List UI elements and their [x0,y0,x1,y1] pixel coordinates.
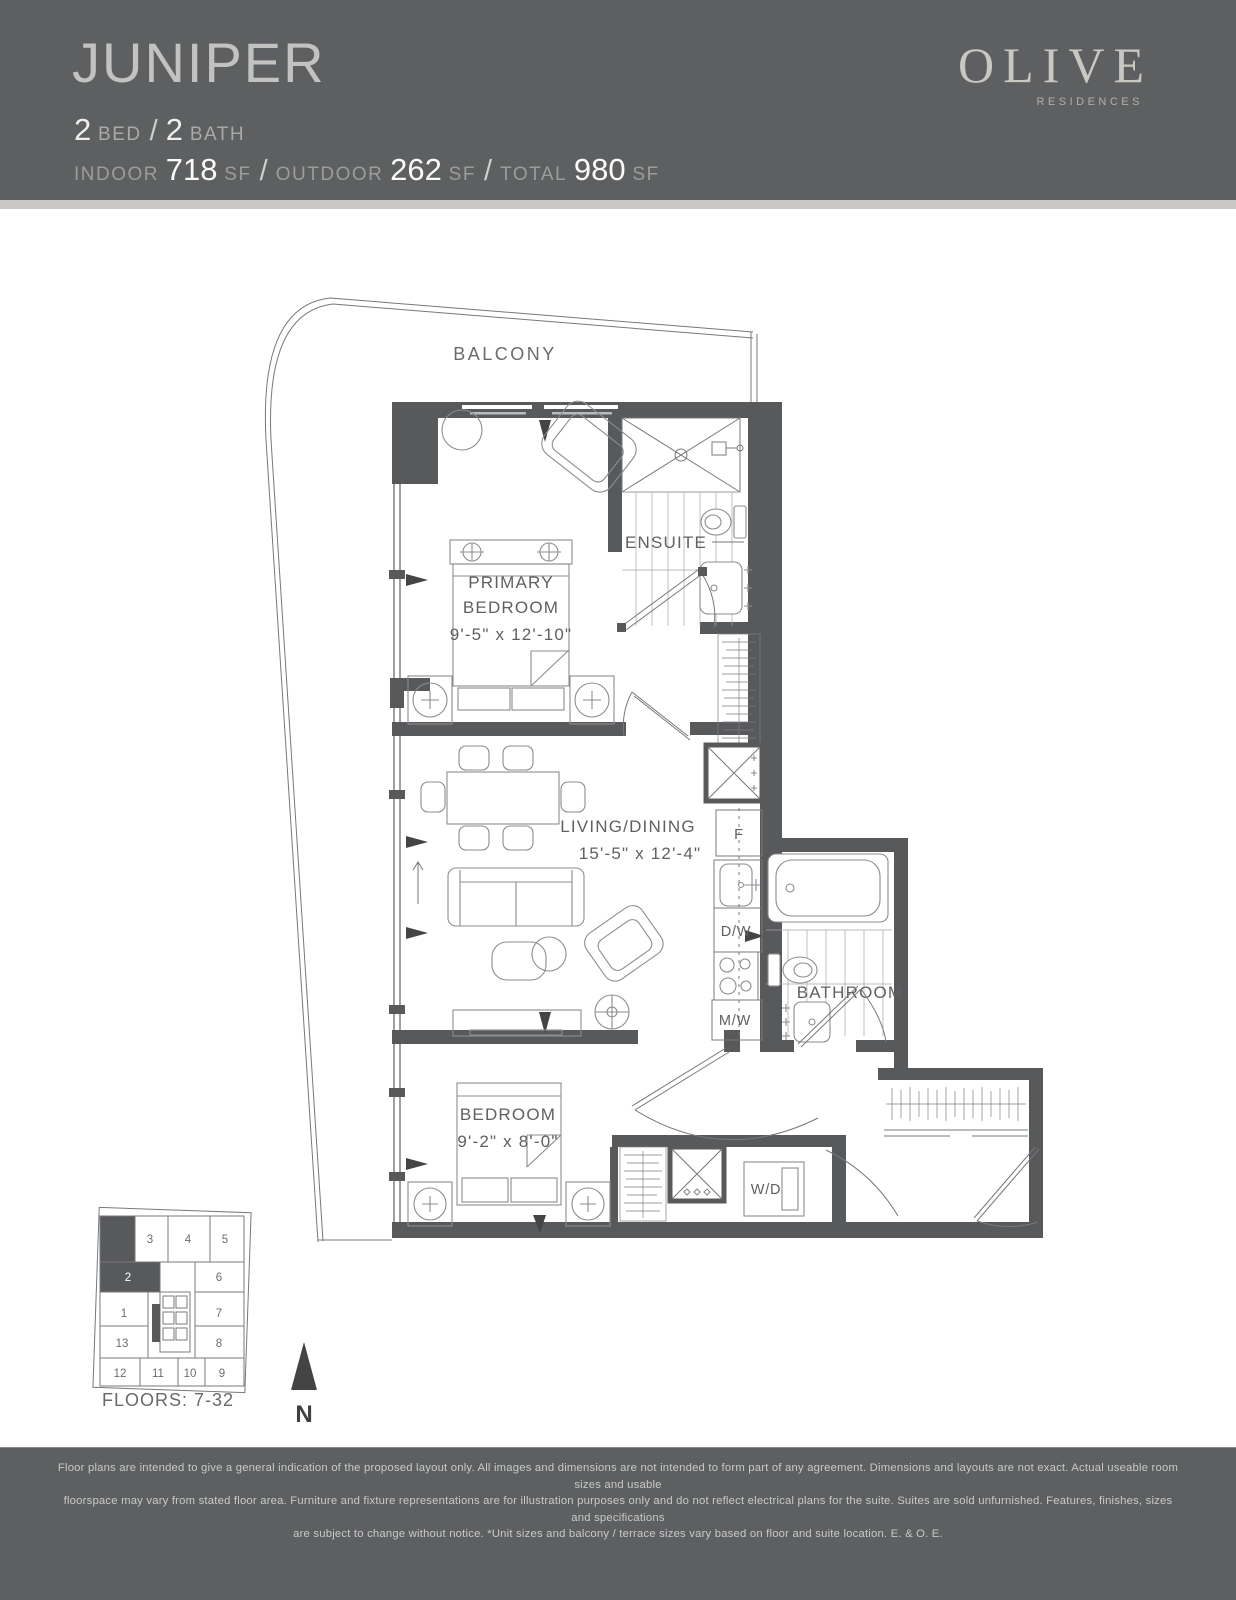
header-band: JUNIPER 2 BED / 2 BATH INDOOR 718 SF / O… [0,0,1236,200]
area-line: INDOOR 718 SF / OUTDOOR 262 SF / TOTAL 9… [74,152,660,188]
brand-logo: OLIVE RESIDENCES [958,36,1144,108]
keyplan-unit-10: 10 [184,1368,197,1380]
kitchen: F D/W M/W [712,808,762,1040]
brand-subtitle: RESIDENCES [958,96,1143,108]
bath-label: BATH [190,124,245,146]
primary-bedroom-label-2: BEDROOM [463,598,559,617]
floor-plan: BALCONY [0,230,1236,1447]
washer-dryer-label: W/D [751,1182,782,1198]
floorplan-sheet: JUNIPER 2 BED / 2 BATH INDOOR 718 SF / O… [0,0,1236,1600]
ensuite-label: ENSUITE [625,533,707,552]
keyplan-unit-9: 9 [219,1368,225,1380]
bath-count: 2 [166,112,183,148]
mechanical-shaft [706,745,762,801]
north-label: N [295,1401,312,1428]
primary-bedroom: PRIMARY BEDROOM 9'-5" x 12'-10" [408,396,642,724]
living-dining: LIVING/DINING 15'-5" x 12'-4" [421,746,701,1036]
bedroom-label: BEDROOM [460,1105,556,1124]
living-dining-dims: 15'-5" x 12'-4" [579,844,702,863]
ensuite-bathroom: ENSUITE [617,418,752,632]
balcony-label: BALCONY [453,344,557,364]
bedroom-dims: 9'-2" x 8'-0" [457,1132,558,1151]
laundry-closet: W/D [670,1147,804,1216]
entry-foyer [826,1087,1043,1226]
bed-label: BED [98,124,142,146]
keyplan-unit-6: 6 [216,1272,222,1284]
sf-label: SF [224,164,251,186]
total-value: 980 [574,152,626,188]
keyplan-unit-13: 13 [116,1338,129,1350]
footer-band: Floor plans are intended to give a gener… [0,1447,1236,1600]
main-bathroom: BATHROOM [766,854,903,1047]
primary-bedroom-label-1: PRIMARY [468,573,554,592]
brand-name: OLIVE [958,36,1153,94]
keyplan-unit-4: 4 [185,1234,192,1246]
keyplan-unit-5: 5 [222,1234,228,1246]
unit-name: JUNIPER [72,30,326,95]
indoor-label: INDOOR [74,164,159,186]
disclaimer-line-1: Floor plans are intended to give a gener… [54,1460,1182,1493]
keyplan-unit-3: 3 [147,1234,153,1246]
keyplan-unit-12: 12 [114,1368,127,1380]
keyplan-unit-1: 1 [121,1308,127,1320]
divider-strip [0,200,1236,209]
keyplan: 1 2 3 4 5 6 7 8 9 10 11 12 13 FLOORS: 7-… [93,1207,251,1410]
indoor-value: 718 [166,152,218,188]
keyplan-unit-7: 7 [216,1308,222,1320]
slash: / [150,115,158,148]
north-arrow-icon: N [291,1342,317,1428]
primary-bedroom-dims: 9'-5" x 12'-10" [450,625,573,644]
disclaimer-line-2: floorspace may vary from stated floor ar… [54,1493,1182,1526]
keyplan-unit-2: 2 [125,1272,131,1284]
dishwasher-label: D/W [721,924,752,940]
keyplan-floors-label: FLOORS: 7-32 [102,1390,234,1410]
bed-count: 2 [74,112,91,148]
bedroom-closet [620,1147,666,1221]
primary-door [623,692,690,740]
bed-bath-line: 2 BED / 2 BATH [74,112,245,148]
keyplan-unit-11: 11 [152,1368,164,1380]
outdoor-value: 262 [390,152,442,188]
disclaimer-line-3: are subject to change without notice. *U… [54,1526,1182,1543]
microwave-label: M/W [719,1013,751,1029]
outdoor-label: OUTDOOR [276,164,384,186]
living-dining-label: LIVING/DINING [560,817,696,836]
total-label: TOTAL [500,164,567,186]
keyplan-unit-8: 8 [216,1338,222,1350]
